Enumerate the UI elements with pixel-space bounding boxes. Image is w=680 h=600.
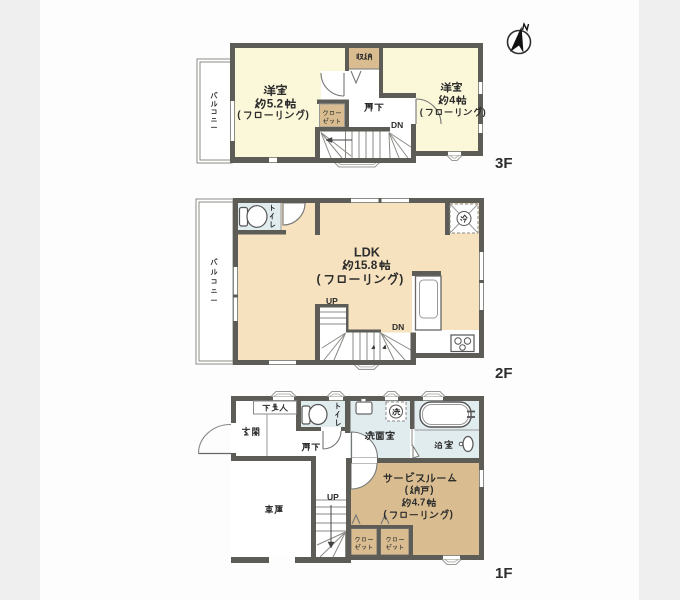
svg-text:): ) <box>399 272 403 286</box>
svg-text:DN: DN <box>391 120 403 130</box>
svg-text:4.7: 4.7 <box>412 498 426 509</box>
svg-text:): ) <box>483 107 486 117</box>
svg-text:UP: UP <box>327 492 339 502</box>
svg-text:4: 4 <box>449 95 455 107</box>
svg-text:1F: 1F <box>495 565 513 582</box>
svg-text:): ) <box>306 110 309 121</box>
svg-text:UP: UP <box>326 296 338 306</box>
svg-text:2F: 2F <box>495 365 513 382</box>
svg-text:DN: DN <box>392 322 404 332</box>
svg-text:5.2: 5.2 <box>267 96 284 110</box>
svg-text:): ) <box>450 510 453 521</box>
svg-text:3F: 3F <box>495 155 513 172</box>
svg-text:15.8: 15.8 <box>354 258 377 272</box>
svg-text:): ) <box>430 485 433 496</box>
